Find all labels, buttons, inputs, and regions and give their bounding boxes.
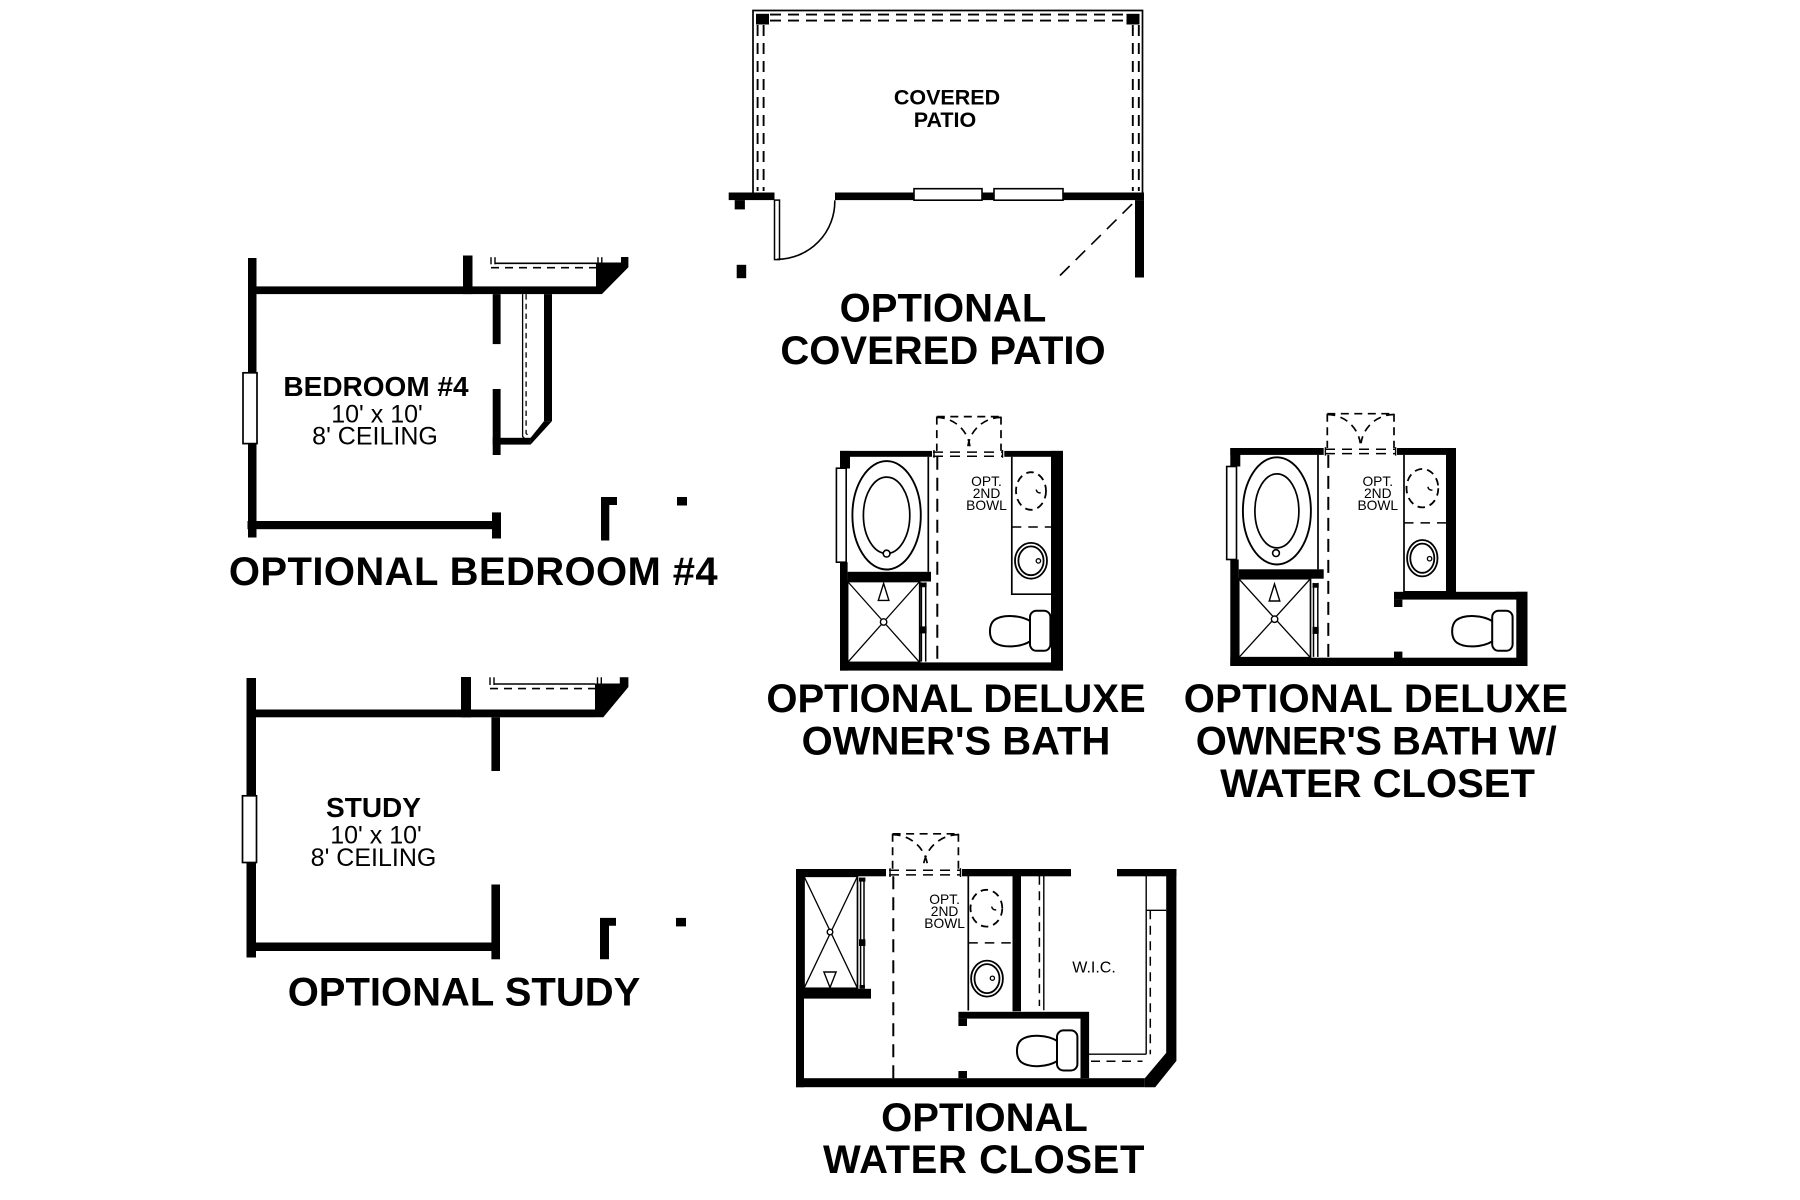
svg-text:WATER CLOSET: WATER CLOSET — [1220, 762, 1535, 806]
svg-text:OWNER'S BATH W/: OWNER'S BATH W/ — [1196, 720, 1557, 764]
svg-text:BOWL: BOWL — [1357, 498, 1398, 513]
svg-text:BOWL: BOWL — [966, 498, 1007, 513]
svg-text:8' CEILING: 8' CEILING — [311, 844, 437, 872]
svg-text:PATIO: PATIO — [914, 108, 977, 132]
svg-text:OPTIONAL BEDROOM #4: OPTIONAL BEDROOM #4 — [229, 550, 718, 594]
svg-text:OWNER'S BATH: OWNER'S BATH — [802, 720, 1111, 764]
svg-text:W.I.C.: W.I.C. — [1072, 960, 1116, 977]
svg-text:STUDY: STUDY — [326, 792, 421, 823]
svg-text:8' CEILING: 8' CEILING — [312, 423, 438, 451]
svg-text:OPTIONAL STUDY: OPTIONAL STUDY — [288, 971, 641, 1015]
svg-text:OPTIONAL DELUXE: OPTIONAL DELUXE — [1184, 677, 1569, 721]
svg-text:WATER CLOSET: WATER CLOSET — [823, 1138, 1145, 1182]
svg-text:OPTIONAL DELUXE: OPTIONAL DELUXE — [766, 677, 1145, 721]
svg-text:BOWL: BOWL — [924, 916, 965, 931]
svg-text:BEDROOM #4: BEDROOM #4 — [283, 371, 469, 402]
svg-text:COVERED: COVERED — [894, 86, 1000, 110]
svg-text:COVERED PATIO: COVERED PATIO — [780, 329, 1105, 373]
svg-text:OPTIONAL: OPTIONAL — [881, 1096, 1088, 1140]
svg-text:OPTIONAL: OPTIONAL — [840, 287, 1047, 331]
